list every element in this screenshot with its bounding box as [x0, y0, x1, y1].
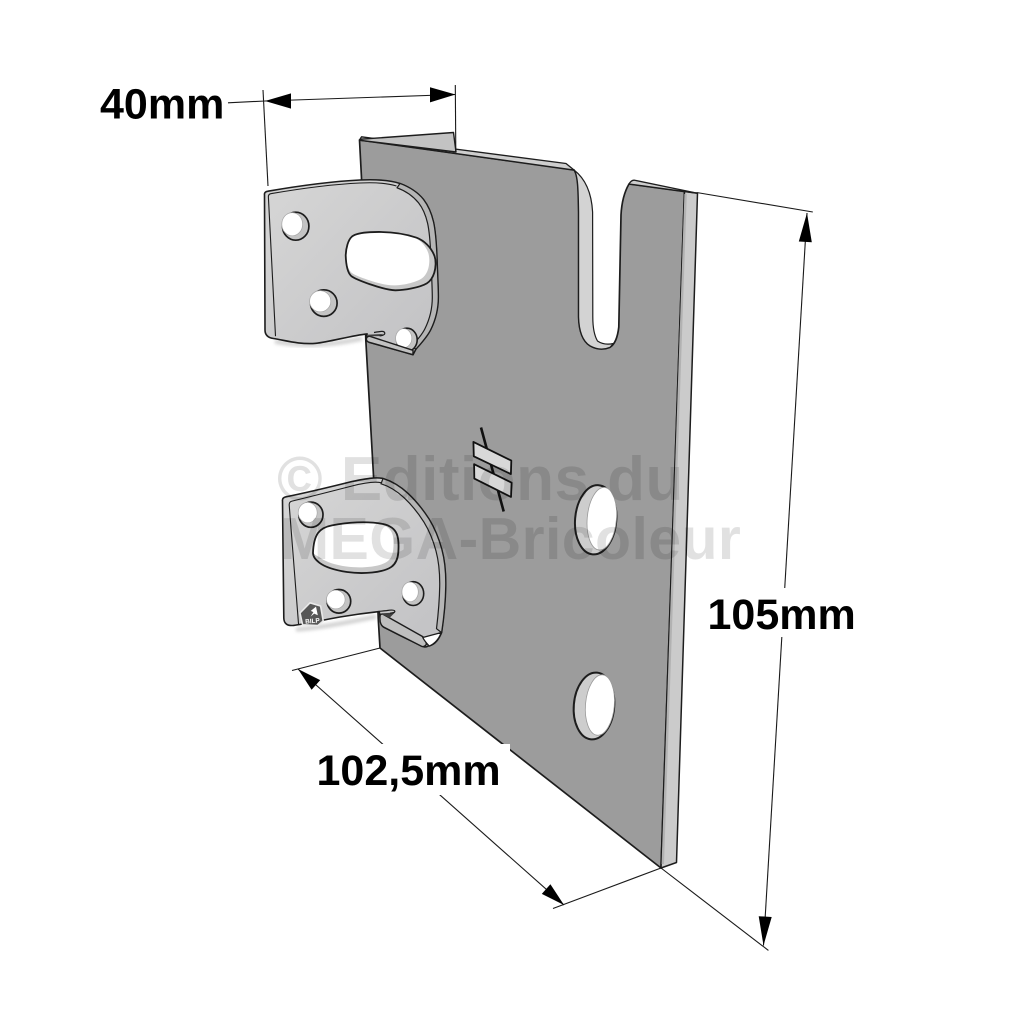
svg-text:MEGA-Bricoleur: MEGA-Bricoleur	[280, 506, 741, 572]
svg-text:40mm: 40mm	[100, 81, 224, 129]
svg-text:BILP: BILP	[305, 617, 321, 625]
svg-text:© Editions du: © Editions du	[277, 445, 684, 514]
svg-text:105mm: 105mm	[708, 591, 856, 639]
svg-text:102,5mm: 102,5mm	[317, 747, 501, 795]
